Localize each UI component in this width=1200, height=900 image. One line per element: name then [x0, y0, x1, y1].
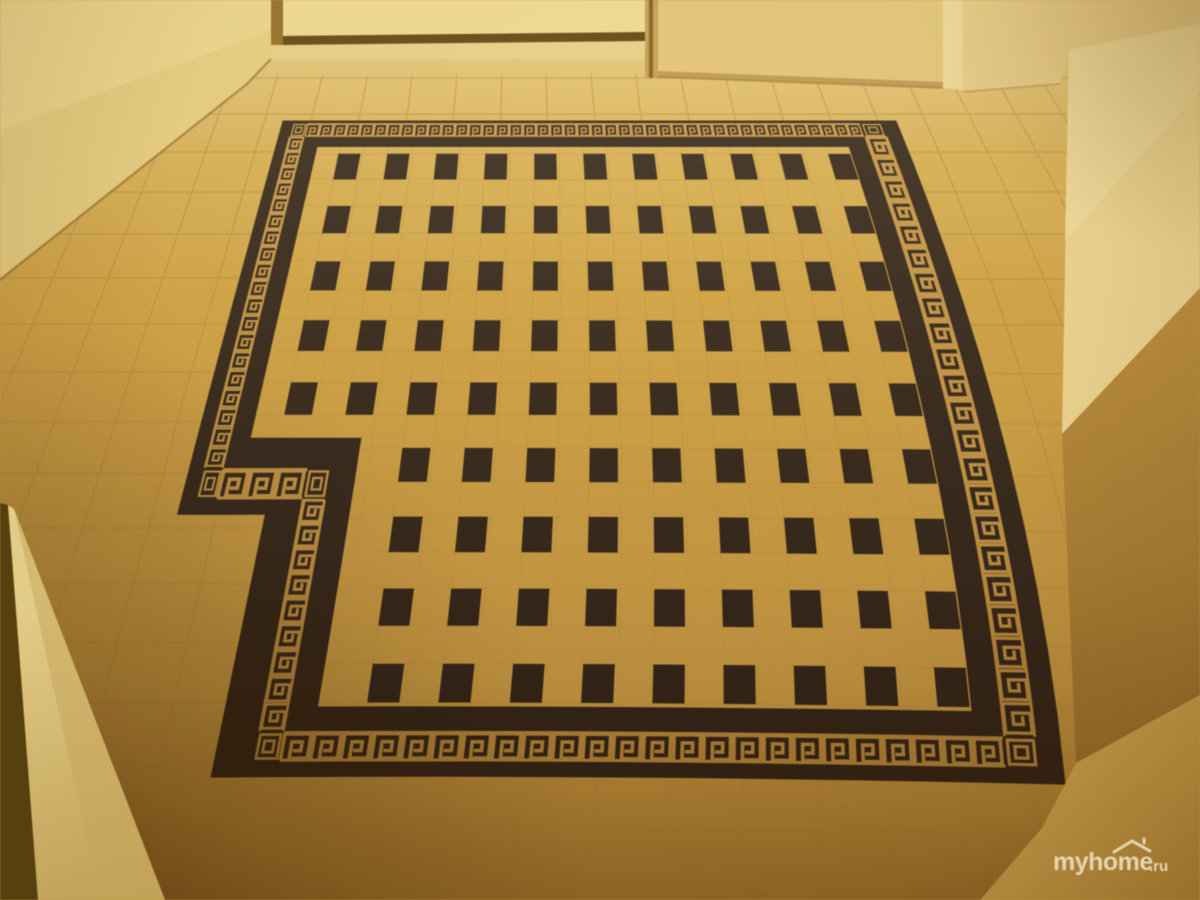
- svg-text:myhome: myhome: [1053, 848, 1153, 876]
- svg-text:.ru: .ru: [1149, 858, 1168, 875]
